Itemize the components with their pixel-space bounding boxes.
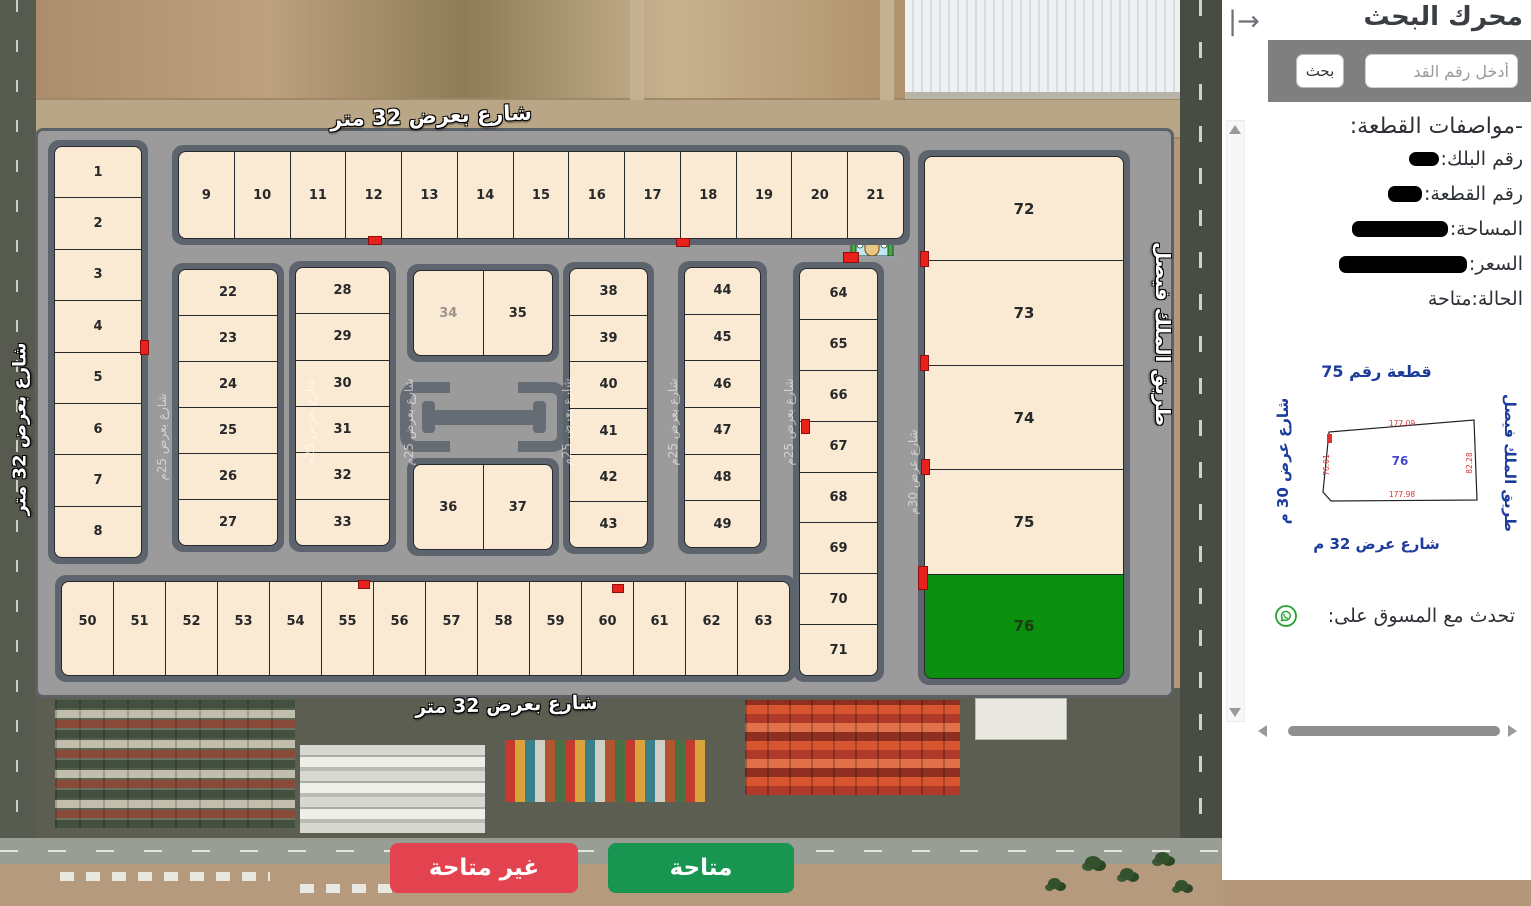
app-screen: شارع بعرض 32 متر شارع بعرض 32 متر شارع ب… — [0, 0, 1531, 906]
plot-specs: -مواصفات القطعة: رقم البلك: رقم القطعة: … — [1243, 114, 1523, 323]
dim-top: 177.09 — [1389, 419, 1415, 428]
plot-number-label: 69 — [829, 541, 847, 556]
block-22-27: 222324252627 — [172, 263, 284, 552]
scroll-down-icon[interactable] — [1229, 708, 1241, 717]
plot-number-label: 6 — [93, 422, 102, 437]
plot-diagram: 177.09 177.98 76.01 82.28 76 — [1314, 413, 1482, 509]
plot-56[interactable]: 56 — [373, 582, 425, 675]
satellite-road — [630, 0, 644, 100]
red-boundary-marker — [612, 584, 624, 593]
plot-number-label: 71 — [829, 643, 847, 658]
plot-61[interactable]: 61 — [633, 582, 685, 675]
plot-number-label: 47 — [713, 423, 731, 438]
plot-55[interactable]: 55 — [321, 582, 373, 675]
red-boundary-marker — [358, 580, 370, 589]
plot-73[interactable]: 73 — [925, 260, 1123, 364]
plot-number-label: 30 — [333, 376, 351, 391]
plot-6[interactable]: 6 — [55, 403, 141, 454]
plot-number-label: 37 — [509, 500, 527, 515]
plot-37[interactable]: 37 — [483, 465, 553, 549]
plot-number-label: 33 — [333, 515, 351, 530]
plot-15[interactable]: 15 — [513, 152, 569, 238]
plot-number-label: 3 — [93, 267, 102, 282]
warehouse-building — [905, 0, 1180, 99]
block-top-row: 9101112131415161718192021 — [172, 145, 910, 245]
scroll-left-icon[interactable] — [1258, 725, 1267, 737]
plot-14[interactable]: 14 — [457, 152, 513, 238]
plot-74[interactable]: 74 — [925, 365, 1123, 469]
plot-47[interactable]: 47 — [685, 407, 760, 454]
search-input[interactable] — [1365, 54, 1518, 88]
faint-street-label: شارع بعرض 25م — [782, 342, 796, 502]
red-boundary-marker — [676, 238, 690, 247]
red-boundary-marker — [843, 252, 859, 263]
plot-4[interactable]: 4 — [55, 300, 141, 351]
plot-number-label: 23 — [219, 331, 237, 346]
plot-number-label: 61 — [650, 614, 668, 629]
plot-16[interactable]: 16 — [568, 152, 624, 238]
dim-left: 76.01 — [1322, 454, 1331, 476]
tree — [1048, 878, 1061, 889]
block-44-49: 444546474849 — [678, 261, 767, 554]
plot-number-label: 68 — [829, 490, 847, 505]
plot-21[interactable]: 21 — [847, 152, 903, 238]
plot-39[interactable]: 39 — [570, 315, 647, 362]
plot-number-label: 38 — [599, 284, 617, 299]
plot-number-label: 2 — [93, 216, 102, 231]
faint-street-label: شارع بعرض 25م — [155, 357, 169, 517]
plot-number-label: 5 — [93, 370, 102, 385]
plot-68[interactable]: 68 — [800, 472, 877, 523]
plot-number-label: 19 — [755, 188, 773, 203]
plot-number-label: 50 — [78, 614, 96, 629]
block-38-43: 383940414243 — [563, 262, 654, 554]
faint-street-label: شارع بعرض 25م — [560, 342, 574, 502]
dim-right: 82.28 — [1465, 452, 1474, 474]
plot-number-label: 40 — [599, 377, 617, 392]
small-building — [975, 698, 1067, 740]
plot-number-label: 8 — [93, 524, 102, 539]
plot-50[interactable]: 50 — [62, 582, 113, 675]
plot-number-label: 13 — [420, 188, 438, 203]
plot-number-label: 28 — [333, 283, 351, 298]
plot-23[interactable]: 23 — [179, 315, 277, 361]
spec-status: الحالة:متاحة — [1243, 288, 1523, 310]
plot-19[interactable]: 19 — [736, 152, 792, 238]
legend-available-button[interactable]: متاحة — [608, 843, 794, 893]
block-bottom-row: 5051525354555657585960616263 — [55, 575, 796, 682]
plot-number-label: 35 — [509, 306, 527, 321]
plot-number-label: 16 — [588, 188, 606, 203]
plot-48[interactable]: 48 — [685, 454, 760, 501]
container-cluster — [55, 700, 295, 828]
plot-number-label: 34 — [439, 306, 457, 321]
plot-number-label: 48 — [713, 470, 731, 485]
plot-number-label: 63 — [754, 614, 772, 629]
plot-number-label: 42 — [599, 470, 617, 485]
plot-69[interactable]: 69 — [800, 522, 877, 573]
plot-number-label: 60 — [598, 614, 616, 629]
tree — [1155, 852, 1170, 864]
plot-number-label: 56 — [390, 614, 408, 629]
plot-number-label: 44 — [713, 283, 731, 298]
faint-street-label: شارع بعرض 25م — [402, 342, 416, 502]
specs-title: -مواصفات القطعة: — [1243, 114, 1523, 139]
vertical-scrollbar[interactable] — [1226, 120, 1245, 722]
plot-1[interactable]: 1 — [55, 147, 141, 197]
plot-number-label: 62 — [702, 614, 720, 629]
plot-number-label: 59 — [546, 614, 564, 629]
plot-number-label: 51 — [130, 614, 148, 629]
plot-number-label: 53 — [234, 614, 252, 629]
plot-number-label: 20 — [811, 188, 829, 203]
plot-number-label: 76 — [1014, 617, 1035, 635]
collapse-sidebar-icon[interactable]: |→ — [1228, 8, 1260, 35]
search-button[interactable]: بحث — [1296, 54, 1344, 88]
plot-60[interactable]: 60 — [581, 582, 633, 675]
redacted-area — [1352, 221, 1448, 237]
plot-number-label: 55 — [338, 614, 356, 629]
plot-number-label: 52 — [182, 614, 200, 629]
plot-7[interactable]: 7 — [55, 454, 141, 505]
block-left: 12345678 — [48, 140, 148, 564]
plot-51[interactable]: 51 — [113, 582, 165, 675]
plot-number-label: 21 — [867, 188, 885, 203]
plot-65[interactable]: 65 — [800, 319, 877, 370]
spec-block-label: رقم البلك: — [1441, 148, 1523, 170]
plot-number-label: 10 — [253, 188, 271, 203]
plot-70[interactable]: 70 — [800, 573, 877, 624]
plot-27[interactable]: 27 — [179, 499, 277, 545]
plot-number-label: 70 — [829, 592, 847, 607]
plot-12[interactable]: 12 — [345, 152, 401, 238]
redacted-price — [1339, 256, 1467, 273]
plot-number-label: 49 — [713, 517, 731, 532]
plot-53[interactable]: 53 — [217, 582, 269, 675]
plot-number-label: 74 — [1014, 409, 1035, 427]
red-boundary-marker — [368, 236, 382, 245]
red-boundary-marker — [918, 566, 928, 590]
satellite-road — [880, 0, 894, 100]
plot-38[interactable]: 38 — [570, 269, 647, 315]
horizontal-scrollbar[interactable] — [1288, 726, 1500, 736]
plot-17[interactable]: 17 — [624, 152, 680, 238]
plot-76[interactable]: 76 — [925, 574, 1123, 678]
plot-11[interactable]: 11 — [290, 152, 346, 238]
plot-number-label: 43 — [599, 517, 617, 532]
plot-number-label: 9 — [202, 188, 211, 203]
plot-67[interactable]: 67 — [800, 421, 877, 472]
plot-number-label: 45 — [713, 330, 731, 345]
king-faisal-road — [1180, 0, 1222, 906]
plot-66[interactable]: 66 — [800, 370, 877, 421]
plot-59[interactable]: 59 — [529, 582, 581, 675]
plot-number-label: 4 — [93, 319, 102, 334]
plot-54[interactable]: 54 — [269, 582, 321, 675]
container-cluster — [505, 740, 705, 802]
plot-number-label: 75 — [1014, 513, 1035, 531]
plot-34[interactable]: 34 — [414, 271, 483, 355]
plot-24[interactable]: 24 — [179, 361, 277, 407]
diagram-street-left: شارع عرض 30 م — [1274, 386, 1292, 536]
plot-number-label: 36 — [439, 500, 457, 515]
plot-number-label: 73 — [1014, 304, 1035, 322]
plot-63[interactable]: 63 — [737, 582, 789, 675]
plot-number-label: 17 — [643, 188, 661, 203]
plot-number-label: 25 — [219, 423, 237, 438]
faint-street-label: شارع بعرض 25م — [666, 342, 680, 502]
plot-46[interactable]: 46 — [685, 360, 760, 407]
block-64-71: 6465666768697071 — [793, 262, 884, 682]
diagram-street-right: طريق الملك فيصل — [1501, 377, 1519, 549]
plot-number-label: 26 — [219, 469, 237, 484]
plot-number-label: 54 — [286, 614, 304, 629]
plot-9[interactable]: 9 — [179, 152, 234, 238]
plot-number-label: 57 — [442, 614, 460, 629]
sidebar-panel: |→ محرك البحث بحث -مواصفات القطعة: رقم ا… — [1222, 0, 1531, 880]
block-right: 7273747576 — [918, 150, 1130, 685]
plot-number-label: 67 — [829, 439, 847, 454]
plot-26[interactable]: 26 — [179, 453, 277, 499]
plot-52[interactable]: 52 — [165, 582, 217, 675]
plot-number-label: 46 — [713, 377, 731, 392]
plot-number-label: 24 — [219, 377, 237, 392]
plot-25[interactable]: 25 — [179, 407, 277, 453]
plot-3[interactable]: 3 — [55, 249, 141, 300]
plot-75[interactable]: 75 — [925, 469, 1123, 573]
block-34-35: 3435 — [407, 264, 559, 362]
scroll-up-icon[interactable] — [1229, 125, 1241, 134]
plot-13[interactable]: 13 — [401, 152, 457, 238]
plot-number-label: 22 — [219, 285, 237, 300]
plot-number-label: 64 — [829, 286, 847, 301]
whatsapp-icon[interactable] — [1274, 604, 1298, 628]
search-bar: بحث — [1268, 40, 1531, 102]
red-boundary-marker — [801, 419, 810, 434]
plot-28[interactable]: 28 — [296, 268, 389, 313]
diagram-plot-number: 76 — [1392, 454, 1409, 468]
plot-number-label: 32 — [333, 468, 351, 483]
plot-18[interactable]: 18 — [680, 152, 736, 238]
tree — [1175, 880, 1188, 891]
diagram-title: قطعة رقم 75 — [1222, 362, 1531, 381]
plot-58[interactable]: 58 — [477, 582, 529, 675]
plot-42[interactable]: 42 — [570, 454, 647, 501]
plot-5[interactable]: 5 — [55, 352, 141, 403]
faint-street-label: شارع عرض 30م — [906, 392, 920, 552]
plot-33[interactable]: 33 — [296, 499, 389, 545]
plot-43[interactable]: 43 — [570, 501, 647, 548]
container-cluster — [300, 745, 485, 833]
tree — [1120, 868, 1134, 880]
red-boundary-marker — [920, 355, 929, 371]
plot-number-label: 11 — [309, 188, 327, 203]
block-36-37: 3637 — [407, 458, 559, 556]
legend-unavailable-button[interactable]: غير متاحة — [390, 843, 578, 893]
red-boundary-marker — [920, 251, 929, 267]
plot-20[interactable]: 20 — [791, 152, 847, 238]
plot-41[interactable]: 41 — [570, 408, 647, 455]
plot-40[interactable]: 40 — [570, 361, 647, 408]
red-boundary-marker — [140, 340, 149, 355]
roundabout-road — [398, 378, 570, 458]
diagram-street-bottom: شارع عرض 32 م — [1222, 535, 1531, 553]
plot-number-label: 1 — [93, 165, 102, 180]
plot-49[interactable]: 49 — [685, 500, 760, 547]
plot-number-label: 18 — [699, 188, 717, 203]
red-boundary-marker — [921, 459, 930, 475]
search-title: محرك البحث — [1364, 2, 1523, 32]
plot-44[interactable]: 44 — [685, 268, 760, 314]
spec-price-label: السعر: — [1469, 253, 1523, 275]
redacted-block-number — [1409, 152, 1439, 166]
plot-45[interactable]: 45 — [685, 314, 760, 361]
plot-8[interactable]: 8 — [55, 506, 141, 557]
plot-number-label: 29 — [333, 329, 351, 344]
plot-number-label: 12 — [365, 188, 383, 203]
plot-35[interactable]: 35 — [483, 271, 553, 355]
plot-number-label: 65 — [829, 337, 847, 352]
plot-36[interactable]: 36 — [414, 465, 483, 549]
scroll-right-icon[interactable] — [1508, 725, 1517, 737]
plot-number-label: 39 — [599, 331, 617, 346]
street-label-left: شارع بعرض 32 متر — [10, 346, 31, 516]
plot-number-label: 15 — [532, 188, 550, 203]
plot-number-label: 14 — [476, 188, 494, 203]
plot-number-label: 31 — [333, 422, 351, 437]
plot-number-label: 72 — [1014, 200, 1035, 218]
parked-trucks — [60, 872, 270, 881]
plot-10[interactable]: 10 — [234, 152, 290, 238]
plot-2[interactable]: 2 — [55, 197, 141, 248]
plot-57[interactable]: 57 — [425, 582, 477, 675]
plot-71[interactable]: 71 — [800, 624, 877, 675]
plot-number-label: 41 — [599, 424, 617, 439]
container-cluster — [745, 700, 960, 795]
dim-bottom: 177.98 — [1389, 490, 1415, 499]
spec-plot-label: رقم القطعة: — [1424, 183, 1523, 205]
plot-number-label: 27 — [219, 515, 237, 530]
plot-22[interactable]: 22 — [179, 270, 277, 315]
plot-number-label: 66 — [829, 388, 847, 403]
redacted-plot-number — [1388, 186, 1422, 202]
plot-72[interactable]: 72 — [925, 157, 1123, 260]
diagram-corner-marker — [1327, 434, 1332, 443]
tree — [1085, 856, 1101, 869]
plot-number-label: 58 — [494, 614, 512, 629]
plot-number-label: 7 — [93, 473, 102, 488]
contact-label: تحدث مع المسوق على: — [1328, 605, 1515, 627]
plot-62[interactable]: 62 — [685, 582, 737, 675]
faint-street-label: شارع بعرض 25م — [303, 342, 317, 502]
plot-64[interactable]: 64 — [800, 269, 877, 319]
street-label-right: طريق الملك فيصل — [1151, 242, 1175, 422]
spec-area-label: المساحة: — [1450, 218, 1523, 240]
